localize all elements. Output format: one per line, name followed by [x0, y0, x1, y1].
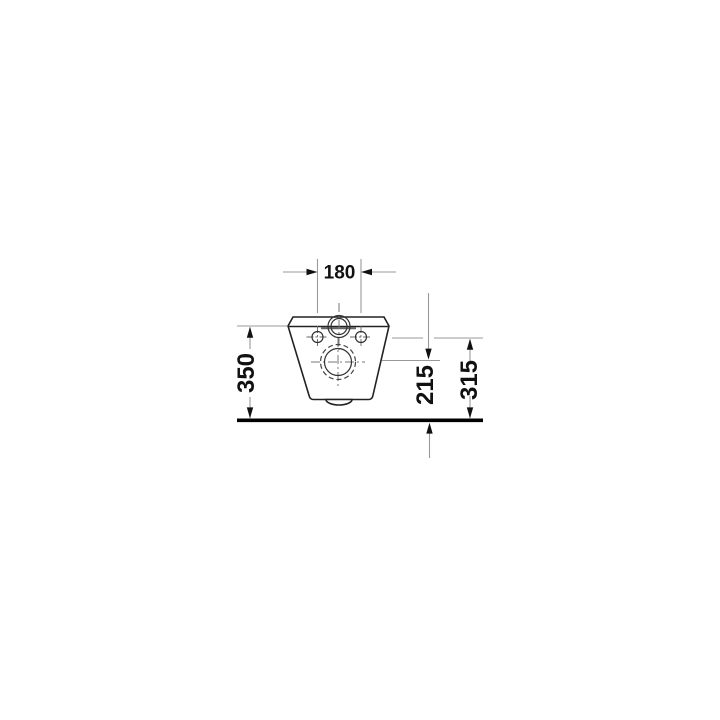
arrowhead-left [361, 269, 372, 275]
arrowhead-up [247, 327, 253, 338]
dimension-label-overall-height: 350 [233, 353, 260, 393]
dimension-outlet-height: 215 [382, 293, 440, 458]
dimension-label-hole-height: 315 [456, 360, 483, 400]
arrowhead-down [467, 407, 473, 418]
dimension-label-hole-spacing: 180 [324, 263, 356, 284]
outlet-bump [326, 400, 352, 406]
dimension-label-outlet-height: 215 [412, 365, 439, 405]
arrowhead-up [426, 423, 432, 434]
technical-drawing: 180 350 315 215 [0, 0, 720, 720]
arrowhead-down [425, 349, 431, 360]
arrowhead-up [467, 339, 473, 350]
drawing-canvas: 180 350 315 215 [0, 0, 720, 720]
arrowhead-right [307, 269, 318, 275]
arrowhead-down [247, 407, 253, 418]
dimension-overall-height: 350 [233, 326, 287, 418]
